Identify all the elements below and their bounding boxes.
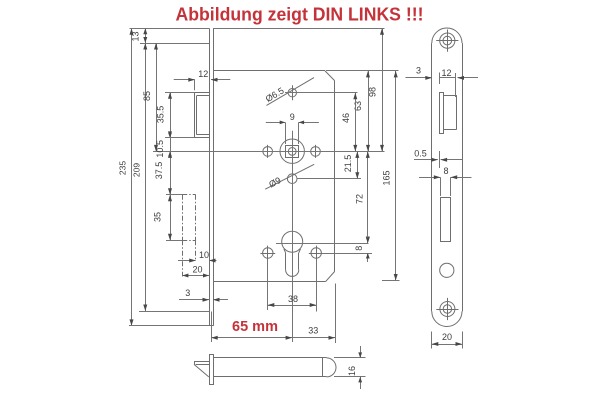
svg-text:72: 72 (355, 194, 365, 204)
svg-text:37.5: 37.5 (154, 162, 164, 180)
svg-text:9: 9 (290, 112, 295, 122)
svg-text:38: 38 (288, 294, 298, 304)
svg-text:209: 209 (132, 163, 142, 177)
svg-text:20: 20 (442, 332, 452, 342)
svg-text:13: 13 (131, 31, 141, 41)
svg-text:235: 235 (118, 161, 128, 175)
svg-text:12: 12 (198, 69, 208, 79)
svg-text:65 mm: 65 mm (232, 319, 278, 335)
svg-text:63: 63 (353, 101, 363, 111)
svg-text:165: 165 (381, 170, 391, 185)
svg-text:Abbildung zeigt DIN LINKS !!!: Abbildung zeigt DIN LINKS !!! (176, 4, 424, 25)
svg-text:Ø6.5: Ø6.5 (264, 85, 286, 104)
svg-text:3: 3 (416, 66, 421, 76)
svg-text:20: 20 (192, 264, 202, 274)
svg-text:12: 12 (441, 68, 451, 78)
svg-text:85: 85 (142, 91, 152, 101)
svg-text:33: 33 (308, 326, 318, 336)
svg-text:8: 8 (443, 166, 448, 176)
svg-text:35: 35 (153, 212, 163, 222)
svg-text:46: 46 (341, 113, 351, 123)
svg-text:10.5: 10.5 (155, 140, 165, 158)
svg-text:10: 10 (199, 250, 209, 260)
svg-text:21.5: 21.5 (343, 155, 353, 173)
svg-text:16: 16 (347, 366, 357, 376)
svg-text:8: 8 (354, 246, 364, 251)
svg-text:3: 3 (185, 288, 190, 298)
svg-text:0.5: 0.5 (414, 149, 427, 159)
svg-text:35.5: 35.5 (155, 106, 165, 124)
